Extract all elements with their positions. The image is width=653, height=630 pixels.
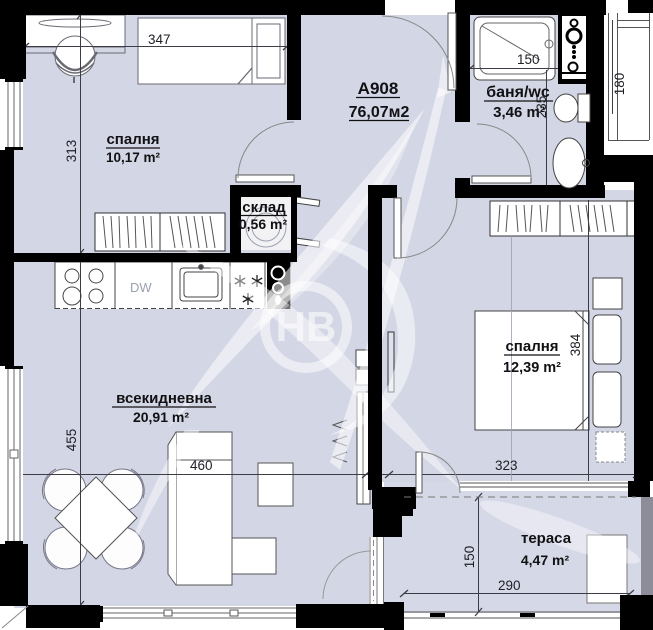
svg-text:20,91 m²: 20,91 m²: [133, 409, 189, 425]
svg-text:290: 290: [498, 578, 521, 593]
svg-text:всекидневна: всекидневна: [116, 390, 212, 407]
svg-text:0,56 m²: 0,56 m²: [239, 216, 288, 232]
svg-text:DW: DW: [130, 280, 152, 295]
svg-text:склад: склад: [242, 199, 286, 216]
svg-text:180: 180: [612, 73, 627, 96]
svg-text:455: 455: [64, 429, 79, 452]
svg-text:А908: А908: [358, 79, 399, 98]
svg-text:НВ: НВ: [276, 303, 337, 350]
svg-text:4,47 m²: 4,47 m²: [521, 552, 570, 568]
svg-text:347: 347: [148, 32, 171, 47]
svg-text:313: 313: [64, 140, 79, 163]
svg-text:150: 150: [462, 546, 477, 569]
svg-text:235: 235: [534, 96, 549, 119]
svg-text:323: 323: [495, 458, 518, 473]
svg-text:150: 150: [517, 52, 540, 67]
svg-text:спалня: спалня: [505, 338, 558, 355]
svg-text:10,17 m²: 10,17 m²: [106, 150, 161, 165]
svg-text:460: 460: [190, 458, 213, 473]
svg-text:76,07м2: 76,07м2: [349, 104, 410, 121]
svg-text:384: 384: [568, 333, 583, 356]
svg-text:спалня: спалня: [106, 131, 159, 148]
svg-text:тераса: тераса: [521, 530, 572, 547]
svg-text:12,39 m²: 12,39 m²: [503, 360, 561, 376]
